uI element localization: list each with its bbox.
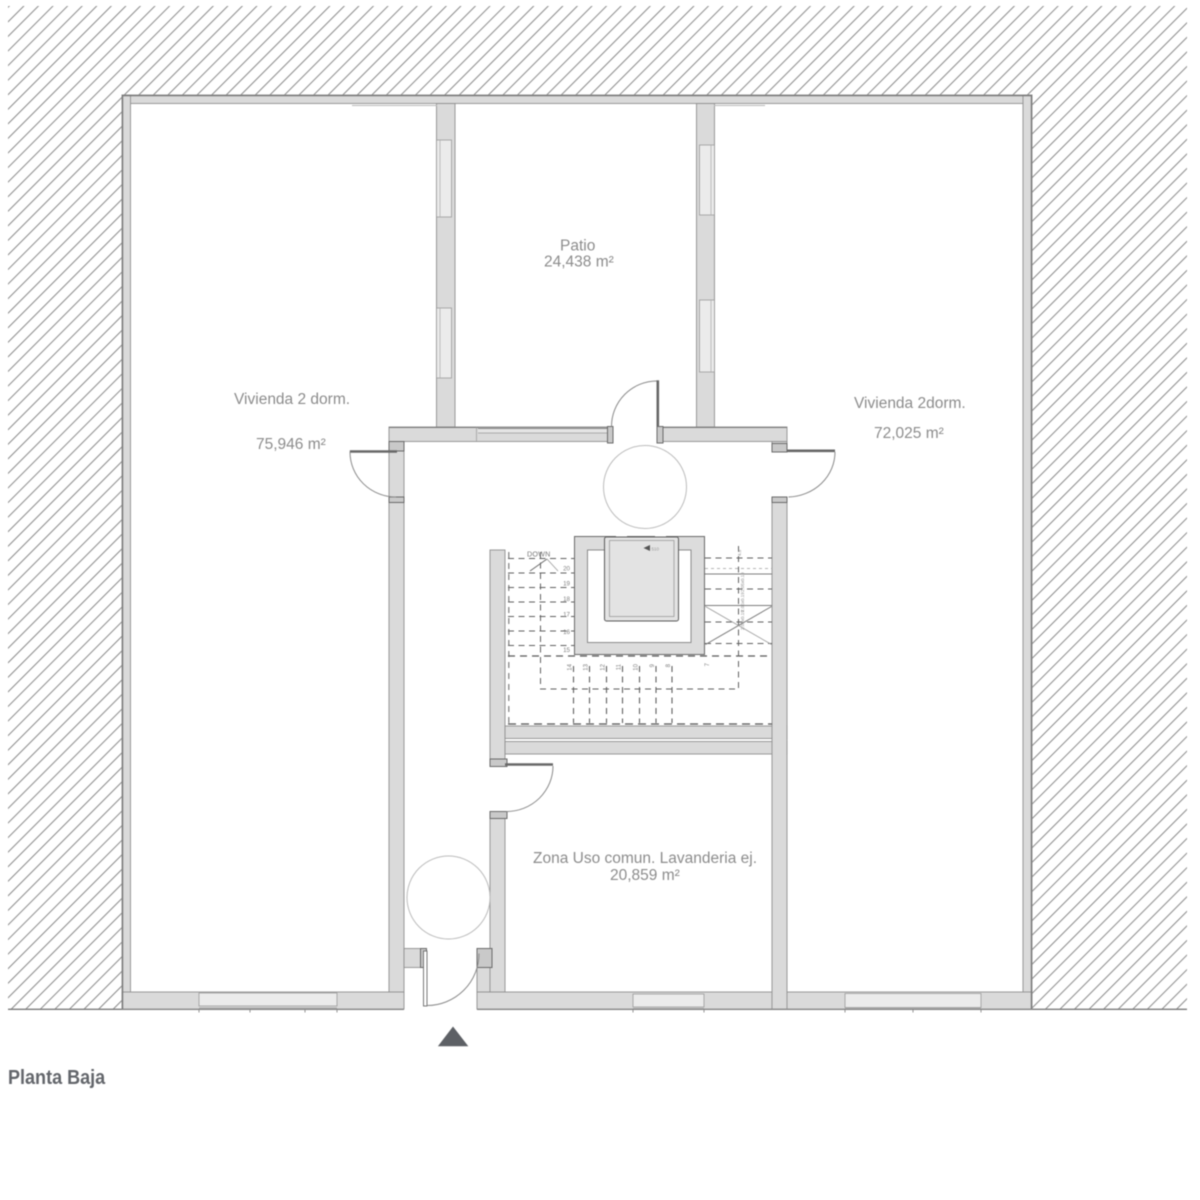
svg-text:12: 12 xyxy=(601,663,607,670)
svg-text:14: 14 xyxy=(568,663,574,670)
svg-text:2.05x0.19: 2.05x0.19 xyxy=(740,572,745,592)
svg-text:11: 11 xyxy=(617,663,623,670)
svg-text:2.05x0.19: 2.05x0.19 xyxy=(740,610,745,630)
svg-text:Vivienda 2 dorm.: Vivienda 2 dorm. xyxy=(234,391,350,408)
svg-text:17: 17 xyxy=(563,612,570,619)
svg-text:15: 15 xyxy=(563,647,570,654)
svg-text:13: 13 xyxy=(584,663,590,670)
svg-text:72,025 m²: 72,025 m² xyxy=(874,425,944,442)
svg-text:4.5: 4.5 xyxy=(737,549,742,556)
svg-text:75,946 m²: 75,946 m² xyxy=(256,436,326,453)
svg-text:18: 18 xyxy=(563,596,570,603)
svg-text:2.05x0.19: 2.05x0.19 xyxy=(740,592,745,612)
svg-text:20: 20 xyxy=(563,566,570,573)
svg-text:19: 19 xyxy=(563,581,570,588)
svg-text:510: 510 xyxy=(652,547,660,552)
svg-text:24,438 m²: 24,438 m² xyxy=(544,254,614,271)
svg-text:10: 10 xyxy=(634,663,640,670)
svg-text:Vivienda 2dorm.: Vivienda 2dorm. xyxy=(854,395,966,412)
svg-text:16: 16 xyxy=(563,629,570,636)
svg-text:Zona Uso comun. Lavanderia ej.: Zona Uso comun. Lavanderia ej. xyxy=(533,850,757,867)
svg-text:Planta Baja: Planta Baja xyxy=(8,1067,105,1089)
svg-text:DOWN: DOWN xyxy=(527,550,551,559)
svg-text:Patio: Patio xyxy=(560,238,595,255)
svg-text:20,859 m²: 20,859 m² xyxy=(610,867,680,884)
